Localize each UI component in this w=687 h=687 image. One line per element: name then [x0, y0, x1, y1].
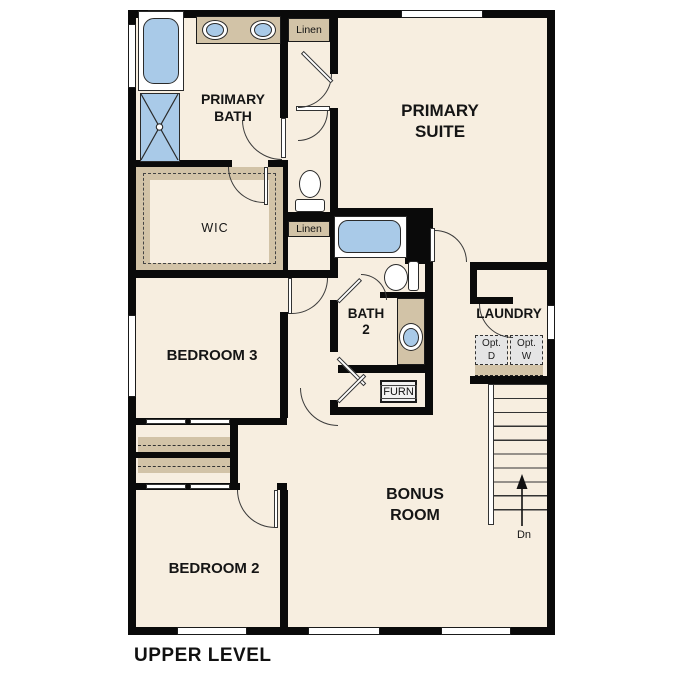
toilet-bath2-tank [408, 261, 419, 291]
optional-washer-box: Opt. W [510, 335, 543, 365]
wall-toilet-linen-divider [288, 212, 330, 221]
closet-dashline [138, 445, 230, 446]
linen-mid-closet: Linen [288, 221, 330, 237]
window-tub [128, 24, 136, 88]
stair-rail [488, 384, 494, 525]
bedroom3-label: BEDROOM 3 [142, 347, 282, 365]
closet-bedroom3-shelf [138, 437, 230, 452]
window-primary-suite [401, 10, 483, 18]
primary-suite-label: PRIMARY SUITE [370, 100, 510, 143]
wall-bedroom3-east [280, 312, 288, 418]
wall-bedroom2-east [280, 490, 288, 627]
linen-top-label: Linen [296, 24, 322, 36]
sink-right-basin [254, 23, 272, 37]
primary-bath-label: PRIMARY BATH [173, 91, 293, 124]
bath2-sink-basin [403, 328, 419, 347]
closet-door-br3-left [146, 419, 186, 424]
wall-laundry-jog [477, 297, 513, 304]
floor-plan: Linen Linen FURN Opt. D Opt. W [128, 10, 555, 635]
bath2-tub-icon [338, 220, 401, 253]
laundry-label: LAUNDRY [464, 306, 554, 322]
toilet-primary-icon [299, 170, 321, 198]
closet-door-br2-left [146, 484, 186, 489]
closet-bedroom2-shelf [138, 458, 230, 473]
laundry-counter [475, 365, 543, 376]
closet-door-br3-right [190, 419, 230, 424]
floor-plan-page: Linen Linen FURN Opt. D Opt. W [0, 0, 687, 687]
wall-ps-west-upper [330, 18, 338, 74]
wall-bedroom2-north-right [277, 483, 287, 490]
stairs-down-label: Dn [509, 529, 539, 542]
window-bedroom2 [177, 627, 247, 635]
window-bedroom3 [128, 315, 136, 397]
wall-laundry-north [470, 262, 547, 270]
primary-tub-icon [143, 18, 179, 84]
wall-bath2-bottom [330, 407, 433, 415]
linen-mid-label: Linen [296, 223, 322, 235]
toilet-primary-tank [295, 199, 325, 212]
linen-top-closet: Linen [288, 18, 330, 42]
sink-left-basin [206, 23, 224, 37]
closet-dashline [138, 466, 230, 467]
furnace-closet: FURN [380, 380, 417, 403]
door-wic-leaf [264, 167, 268, 205]
optional-dryer-box: Opt. D [475, 335, 508, 365]
bath2-label: BATH 2 [336, 306, 396, 338]
stair-up-arrow-icon [507, 472, 537, 528]
window-bonus-left [308, 627, 380, 635]
bonus-room-label: BONUS ROOM [345, 485, 485, 527]
furnace-label: FURN [380, 385, 417, 399]
wall-wic-bottom [136, 270, 338, 278]
wall-outer-top [128, 10, 555, 18]
window-bonus-right [441, 627, 511, 635]
closet-door-br2-right [190, 484, 230, 489]
page-title: UPPER LEVEL [134, 645, 271, 667]
wall-bath-wic-right [268, 160, 288, 167]
wic-label: WIC [175, 221, 255, 236]
toilet-bath2-icon [384, 264, 408, 291]
wall-laundry-west [470, 270, 477, 304]
bedroom2-label: BEDROOM 2 [144, 560, 284, 578]
wall-laundry-south [470, 376, 547, 384]
